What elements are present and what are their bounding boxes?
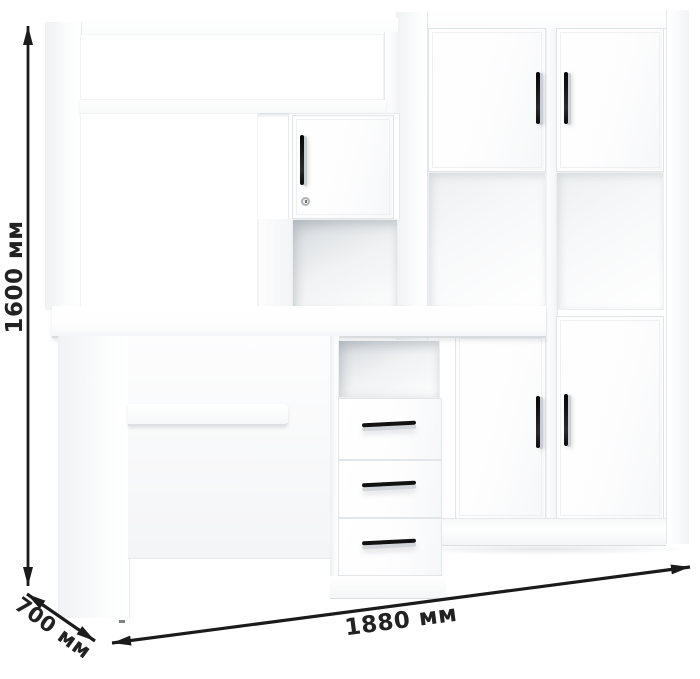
hutch-open-niche	[292, 219, 398, 312]
cabinet-top-right-door-handle-icon	[564, 72, 568, 124]
hutch-left-side-panel	[45, 22, 82, 310]
cabinet-open-shelf-right	[556, 172, 664, 310]
pedestal-base	[330, 576, 446, 599]
cabinet-bottom-right-door	[556, 316, 664, 520]
hutch-door-handle-icon	[300, 135, 304, 185]
height-dimension-label: 1600 мм	[2, 220, 28, 333]
cabinet-bottom-right-door-handle-icon	[564, 394, 568, 446]
drawer-1	[338, 398, 442, 460]
hutch-middle-shelf	[80, 100, 386, 114]
cabinet-open-shelf-left	[428, 172, 546, 310]
drawer-2	[338, 460, 442, 518]
hutch-top-shelf	[78, 18, 398, 35]
desk-worktop	[52, 306, 546, 338]
drawer-3	[338, 518, 442, 576]
cabinet-right-side-panel	[666, 10, 689, 544]
cabinet-top-left-door-handle-icon	[536, 72, 540, 124]
computer-desk	[52, 306, 546, 622]
hutch-door-keyhole-icon	[301, 197, 310, 206]
desk-hutch	[45, 16, 398, 310]
drawer-pedestal	[330, 336, 446, 598]
furniture-product-image: 1600 мм 700 мм 1880 мм	[0, 0, 700, 679]
cabinet-top-panel	[396, 10, 688, 29]
cabinet-top-right-door	[556, 28, 664, 172]
pedestal-open-niche	[338, 340, 440, 398]
cabinet-top-left-door	[428, 28, 546, 172]
hutch-lower-divider	[258, 219, 294, 310]
hutch-left-opening	[80, 113, 258, 310]
desk-back-panel	[128, 336, 334, 559]
desk-left-side-panel	[58, 336, 130, 618]
hutch-top-opening	[80, 34, 384, 100]
keyboard-shelf	[128, 404, 288, 426]
